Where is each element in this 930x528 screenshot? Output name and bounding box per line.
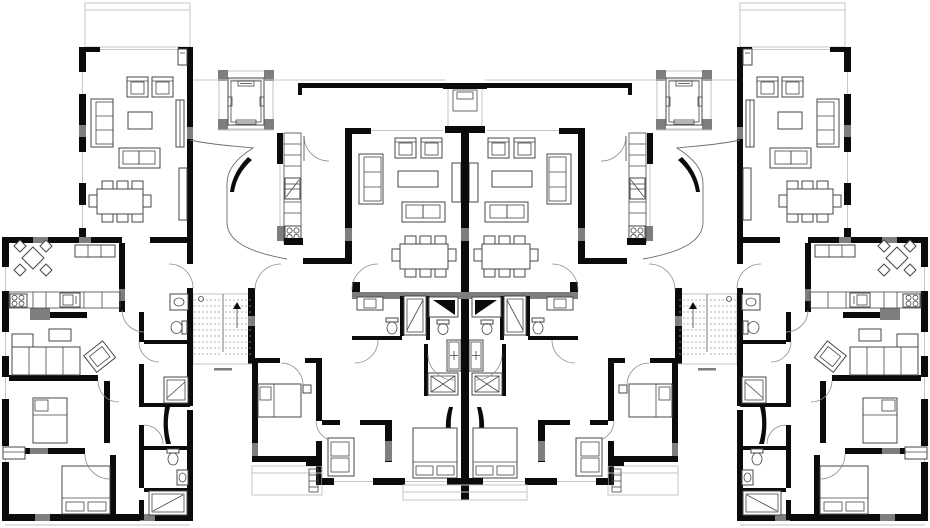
left-half — [2, 3, 461, 525]
vent-shaft — [443, 83, 487, 133]
right-half-mirror — [469, 3, 928, 525]
floor-plan-canvas — [0, 0, 930, 528]
party-wall — [461, 126, 469, 500]
floor-plan-page — [0, 0, 930, 528]
